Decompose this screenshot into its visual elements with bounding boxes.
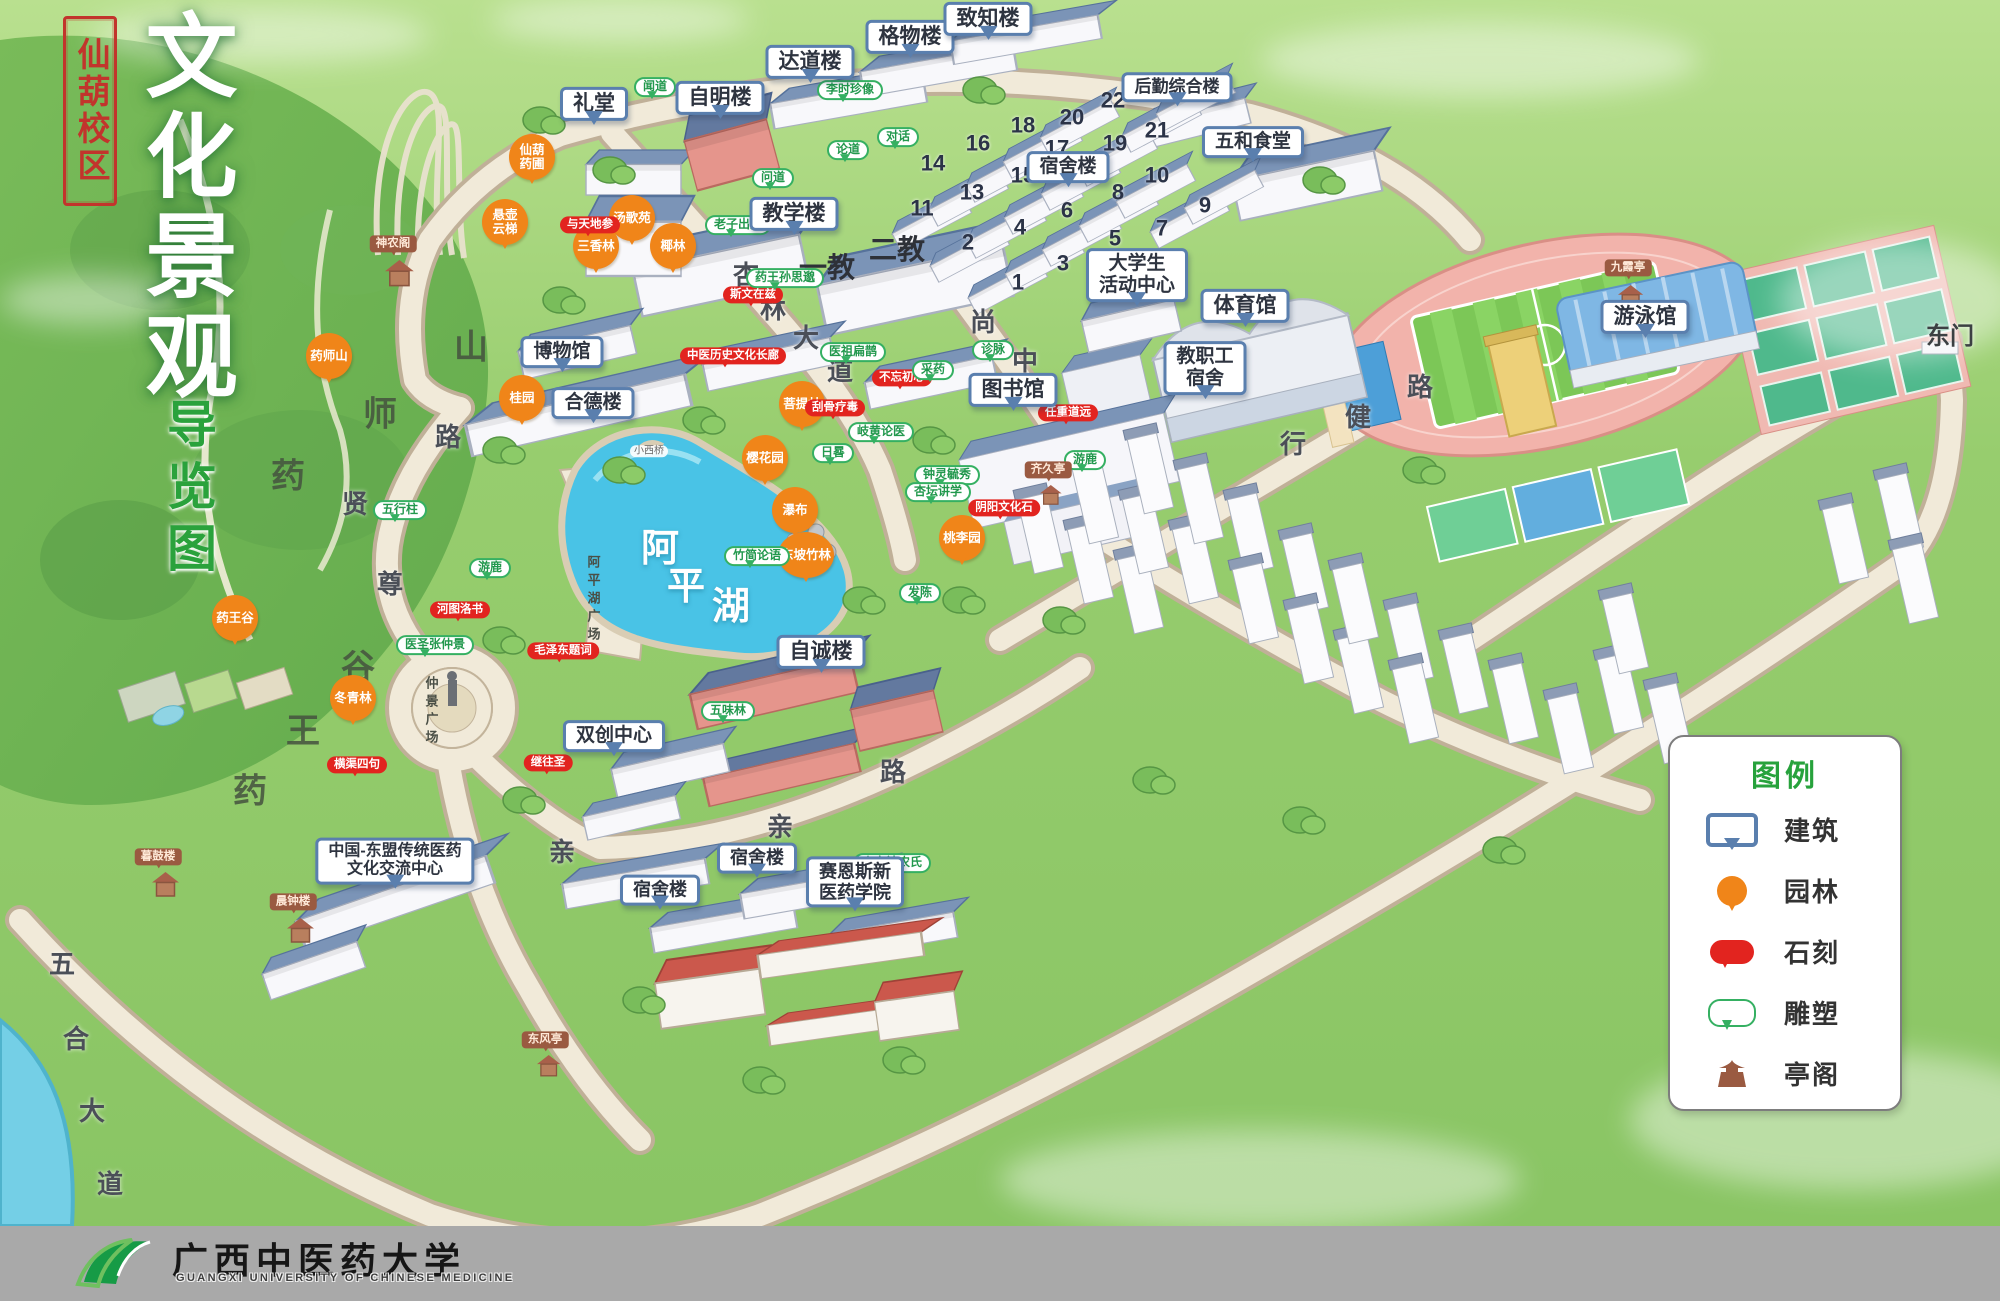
road-name-character: 亲 [549, 838, 575, 868]
dorm-number: 2 [962, 229, 974, 254]
garden-pin-text: 药王谷 [216, 611, 254, 625]
stone-label-text: 斯文在兹 [730, 288, 776, 300]
garden-pin-text: 樱花园 [746, 451, 784, 465]
legend-title: 图例 [1670, 751, 1900, 795]
building-label: 宿舍楼 [1026, 151, 1109, 183]
stone-inscription-label: 任重道远 [1038, 404, 1098, 421]
legend-item-stone: 石刻 [1670, 921, 1900, 982]
building-label-text: 后勤综合楼 [1135, 77, 1220, 96]
building-label: 体育馆 [1201, 289, 1290, 323]
sculpture-label-text: 诊脉 [981, 342, 1005, 356]
building-label-text: 达道楼 [779, 50, 842, 73]
road-name-character: 尚 [970, 308, 996, 338]
building-label: 礼堂 [560, 87, 628, 121]
road-name-character: 五 [49, 950, 75, 980]
garden-pin: 桂园 [499, 375, 545, 421]
building-label: 双创中心 [563, 720, 665, 752]
building-label-text: 格物楼 [879, 25, 942, 48]
sculpture-label: 医祖扁鹊 [820, 342, 886, 362]
pavilion-label: 九霞亭 [1605, 259, 1652, 276]
stone-inscription-label: 中医历史文化长廊 [680, 347, 786, 364]
footer-bar: 广西中医药大学 GUANGXI UNIVERSITY OF CHINESE ME… [0, 1226, 2000, 1301]
stone-label-text: 中医历史文化长廊 [687, 349, 779, 361]
road-name-character: 路 [880, 758, 906, 788]
building-label-text: 合德楼 [564, 392, 621, 413]
legend-label: 亭阁 [1784, 1055, 1840, 1092]
sculpture-label-text: 五味林 [710, 703, 746, 717]
garden-pin-text: 冬青林 [334, 691, 372, 705]
stone-label-text: 毛泽东题词 [534, 644, 592, 656]
campus-seal: 仙葫校区 [63, 16, 117, 206]
sculpture-label: 游鹿 [469, 558, 511, 578]
building-label: 后勤综合楼 [1122, 72, 1233, 102]
dorm-number: 4 [1014, 214, 1026, 239]
dorm-number: 6 [1061, 197, 1073, 222]
road-name-character: 道 [97, 1170, 123, 1200]
dorm-number: 10 [1145, 162, 1169, 187]
stone-label-text: 与天地参 [567, 218, 613, 230]
building-label-text: 图书馆 [982, 378, 1045, 401]
apinghu-plaza-label: 阿平湖广场 [585, 555, 600, 645]
sculpture-label: 问道 [752, 168, 794, 188]
sculpture-label: 竹简论语 [724, 546, 790, 566]
sculpture-label: 杏坛讲学 [905, 482, 971, 502]
garden-pin: 冬青林 [330, 675, 376, 721]
building-label-text: 宿舍楼 [633, 880, 687, 900]
building-label-text: 教职工 宿舍 [1176, 346, 1233, 389]
road-name-character: 尊 [377, 570, 403, 600]
dorm-number: 21 [1145, 117, 1169, 142]
legend-label: 雕塑 [1784, 994, 1840, 1031]
teaching-area-name: 二教 [869, 234, 925, 266]
dorm-number: 1 [1012, 269, 1024, 294]
building-label-text: 大学生 活动中心 [1099, 253, 1175, 296]
garden-pin-text: 椰林 [660, 239, 685, 253]
building-label: 游泳馆 [1601, 300, 1690, 334]
sculpture-label: 论道 [827, 140, 869, 160]
pavilion-label: 晨钟楼 [270, 893, 317, 910]
garden-pin: 瀑布 [772, 487, 818, 533]
lake-name-character: 湖 [712, 586, 750, 630]
dorm-number: 7 [1156, 215, 1168, 240]
building-label-text: 赛恩斯新 医药学院 [819, 861, 891, 902]
sculpture-label-text: 游鹿 [478, 560, 502, 574]
building-label: 宿舍楼 [717, 843, 797, 874]
building-label-text: 教学楼 [763, 202, 826, 225]
stone-inscription-label: 继往圣 [524, 754, 573, 771]
pavilion-label: 东风亭 [522, 1031, 569, 1048]
sculpture-label: 诊脉 [972, 340, 1014, 360]
building-label-text: 致知楼 [957, 7, 1020, 30]
dorm-number: 11 [910, 195, 933, 220]
road-name-character: 健 [1345, 403, 1371, 433]
road-name-character: 大 [793, 324, 819, 354]
sculpture-label: 医圣张仲景 [396, 635, 474, 655]
pavilion-label-text: 东风亭 [528, 1033, 563, 1045]
stone-label-text: 继往圣 [531, 756, 566, 768]
sculpture-label: 对话 [877, 127, 919, 147]
building-label: 教职工 宿舍 [1163, 341, 1246, 395]
sculpture-label: 闻道 [634, 77, 676, 97]
garden-pin: 椰林 [650, 223, 696, 269]
building-label-text: 宿舍楼 [730, 848, 784, 868]
garden-pin-text: 桃李园 [943, 531, 981, 545]
sculpture-bubble-icon [1706, 999, 1758, 1027]
garden-pin-text: 仙葫 药圃 [519, 143, 544, 172]
pavilion-label-text: 九霞亭 [1611, 261, 1646, 273]
dorm-number: 18 [1011, 112, 1035, 137]
building-label: 格物楼 [866, 20, 955, 54]
building-label-text: 体育馆 [1214, 294, 1277, 317]
stone-inscription-label: 刮骨疗毒 [805, 399, 865, 416]
dorm-number: 20 [1060, 104, 1084, 129]
building-label: 图书馆 [969, 373, 1058, 407]
terrain-name-character: 药 [233, 772, 267, 811]
building-label-text: 礼堂 [573, 92, 615, 115]
sculpture-label: 五行柱 [373, 500, 427, 520]
legend-item-garden: 园林 [1670, 860, 1900, 921]
dorm-number: 5 [1109, 225, 1121, 250]
map-subtitle: 导览图 [152, 398, 224, 584]
pavilion-label-text: 暮鼓楼 [141, 850, 176, 862]
building-label: 自明楼 [676, 81, 765, 115]
garden-pin: 桃李园 [939, 515, 985, 561]
building-label-text: 中国-东盟传统医药 文化交流中心 [328, 843, 461, 878]
sculpture-label-text: 日晷 [821, 445, 845, 459]
sculpture-label: 岐黄论医 [848, 422, 914, 442]
dorm-number: 8 [1112, 179, 1124, 204]
garden-pin-text: 瀑布 [782, 503, 807, 517]
garden-pin: 药师山 [306, 333, 352, 379]
road-name-character: 路 [1407, 373, 1433, 403]
stone-inscription-label: 毛泽东题词 [527, 642, 599, 659]
building-label: 宿舍楼 [620, 875, 700, 906]
university-logo [72, 1232, 162, 1294]
sculpture-label-text: 岐黄论医 [857, 424, 905, 438]
road-name-character: 贤 [342, 490, 368, 520]
building-label-text: 五和食堂 [1215, 131, 1291, 152]
stone-label-text: 横渠四句 [334, 758, 380, 770]
terrain-name-character: 药 [271, 457, 305, 496]
dorm-number: 9 [1199, 192, 1211, 217]
sculpture-label-text: 医祖扁鹊 [829, 344, 877, 358]
legend-label: 石刻 [1784, 933, 1840, 970]
dorm-number: 13 [960, 179, 984, 204]
legend-label: 建筑 [1784, 811, 1840, 848]
sculpture-label: 药王孙思邈 [746, 268, 824, 288]
stone-label-text: 河图洛书 [437, 603, 483, 615]
campus-map: 阿平湖广场 仲景广场 小西桥 礼堂自明楼达道楼格物楼致知楼后勤综合楼五和食堂宿舍… [0, 0, 2000, 1301]
building-label: 博物馆 [520, 336, 603, 368]
building-label: 大学生 活动中心 [1086, 248, 1188, 302]
building-label-text: 游泳馆 [1614, 305, 1677, 328]
road-name-character: 行 [1280, 430, 1306, 460]
sculpture-label-text: 竹简论语 [733, 548, 781, 562]
garden-pin: 药王谷 [212, 595, 258, 641]
legend-label: 园林 [1784, 872, 1840, 909]
garden-pin: 悬壶 云梯 [482, 199, 528, 245]
terrain-name-character: 王 [286, 712, 320, 751]
sculpture-label-text: 发陈 [908, 585, 932, 599]
road-name-character: 大 [79, 1097, 105, 1127]
dorm-number: 14 [921, 150, 945, 175]
building-label-text: 自诚楼 [790, 640, 853, 663]
building-label: 自诚楼 [777, 635, 866, 669]
garden-pin-text: 桂园 [509, 391, 534, 405]
dorm-number: 3 [1057, 250, 1069, 275]
road-name-character: 合 [63, 1025, 89, 1055]
sculpture-label: 李时珍像 [817, 80, 883, 100]
building-label: 五和食堂 [1202, 126, 1304, 158]
building-label-text: 博物馆 [533, 341, 590, 362]
pavilion-label: 神农阁 [370, 235, 417, 252]
sculpture-label-text: 药王孙思邈 [755, 270, 815, 284]
sculpture-label: 发陈 [899, 583, 941, 603]
pavilion-icon [1706, 1059, 1758, 1089]
building-label: 赛恩斯新 医药学院 [806, 856, 904, 907]
sculpture-label-text: 闻道 [643, 79, 667, 93]
sculpture-label-text: 李时珍像 [826, 82, 874, 96]
sculpture-label: 五味林 [701, 701, 755, 721]
sculpture-label: 采药 [912, 360, 954, 380]
sculpture-label-text: 论道 [836, 142, 860, 156]
sculpture-label-text: 问道 [761, 170, 785, 184]
legend-panel: 图例 建筑 园林 石刻 雕塑 亭阁 [1668, 735, 1902, 1111]
building-label: 教学楼 [750, 197, 839, 231]
pavilion-label: 暮鼓楼 [135, 848, 182, 865]
zhongjing-plaza-label: 仲景广场 [423, 676, 438, 748]
university-name-en: GUANGXI UNIVERSITY OF CHINESE MEDICINE [176, 1272, 515, 1284]
building-label: 合德楼 [551, 387, 634, 419]
sculpture-label-text: 采药 [921, 362, 945, 376]
building-label: 达道楼 [766, 45, 855, 79]
building-label: 中国-东盟传统医药 文化交流中心 [315, 838, 474, 885]
sculpture-label-text: 游鹿 [1073, 452, 1097, 466]
legend-item-sculpture: 雕塑 [1670, 982, 1900, 1043]
stone-inscription-label: 河图洛书 [430, 601, 490, 618]
sculpture-label-text: 五行柱 [382, 502, 418, 516]
road-name-character: 亲 [767, 813, 793, 843]
building-callout-icon [1706, 813, 1758, 847]
terrain-name-character: 山 [454, 328, 488, 367]
road-name-character: 路 [435, 423, 461, 453]
stone-inscription-label: 与天地参 [560, 216, 620, 233]
lake-name-character: 平 [667, 566, 705, 610]
gate-label: 东门 [1926, 323, 1974, 351]
garden-pin-text: 悬壶 云梯 [492, 208, 517, 237]
sculpture-label-text: 对话 [886, 129, 910, 143]
garden-pin-text: 药师山 [310, 349, 348, 363]
building-label: 致知楼 [944, 2, 1033, 36]
garden-pin-icon [1706, 876, 1758, 906]
sculpture-label-text: 杏坛讲学 [914, 484, 962, 498]
legend-item-building: 建筑 [1670, 799, 1900, 860]
sculpture-label-text: 医圣张仲景 [405, 637, 465, 651]
stone-label-text: 阴阳文化石 [975, 501, 1033, 513]
stone-label-text: 刮骨疗毒 [812, 401, 858, 413]
garden-pin: 樱花园 [742, 435, 788, 481]
stone-inscription-label: 阴阳文化石 [968, 499, 1040, 516]
stone-bubble-icon [1706, 940, 1758, 964]
pavilion-label-text: 神农阁 [376, 237, 411, 249]
building-label-text: 双创中心 [576, 725, 652, 746]
garden-pin: 仙葫 药圃 [509, 134, 555, 180]
map-title: 文化景观 [118, 8, 251, 408]
legend-item-pavilion: 亭阁 [1670, 1043, 1900, 1104]
pavilion-label: 齐久亭 [1025, 461, 1072, 478]
building-label-text: 自明楼 [689, 86, 752, 109]
bridge-label: 小西桥 [630, 445, 668, 457]
dorm-number: 16 [966, 130, 990, 155]
building-label-text: 宿舍楼 [1039, 156, 1096, 177]
terrain-name-character: 师 [363, 395, 397, 434]
sculpture-label-text: 钟灵毓秀 [923, 467, 971, 481]
stone-label-text: 任重道远 [1045, 406, 1091, 418]
stone-inscription-label: 横渠四句 [327, 756, 387, 773]
pavilion-label-text: 齐久亭 [1031, 463, 1066, 475]
pavilion-label-text: 晨钟楼 [276, 895, 311, 907]
sculpture-label: 日晷 [812, 443, 854, 463]
